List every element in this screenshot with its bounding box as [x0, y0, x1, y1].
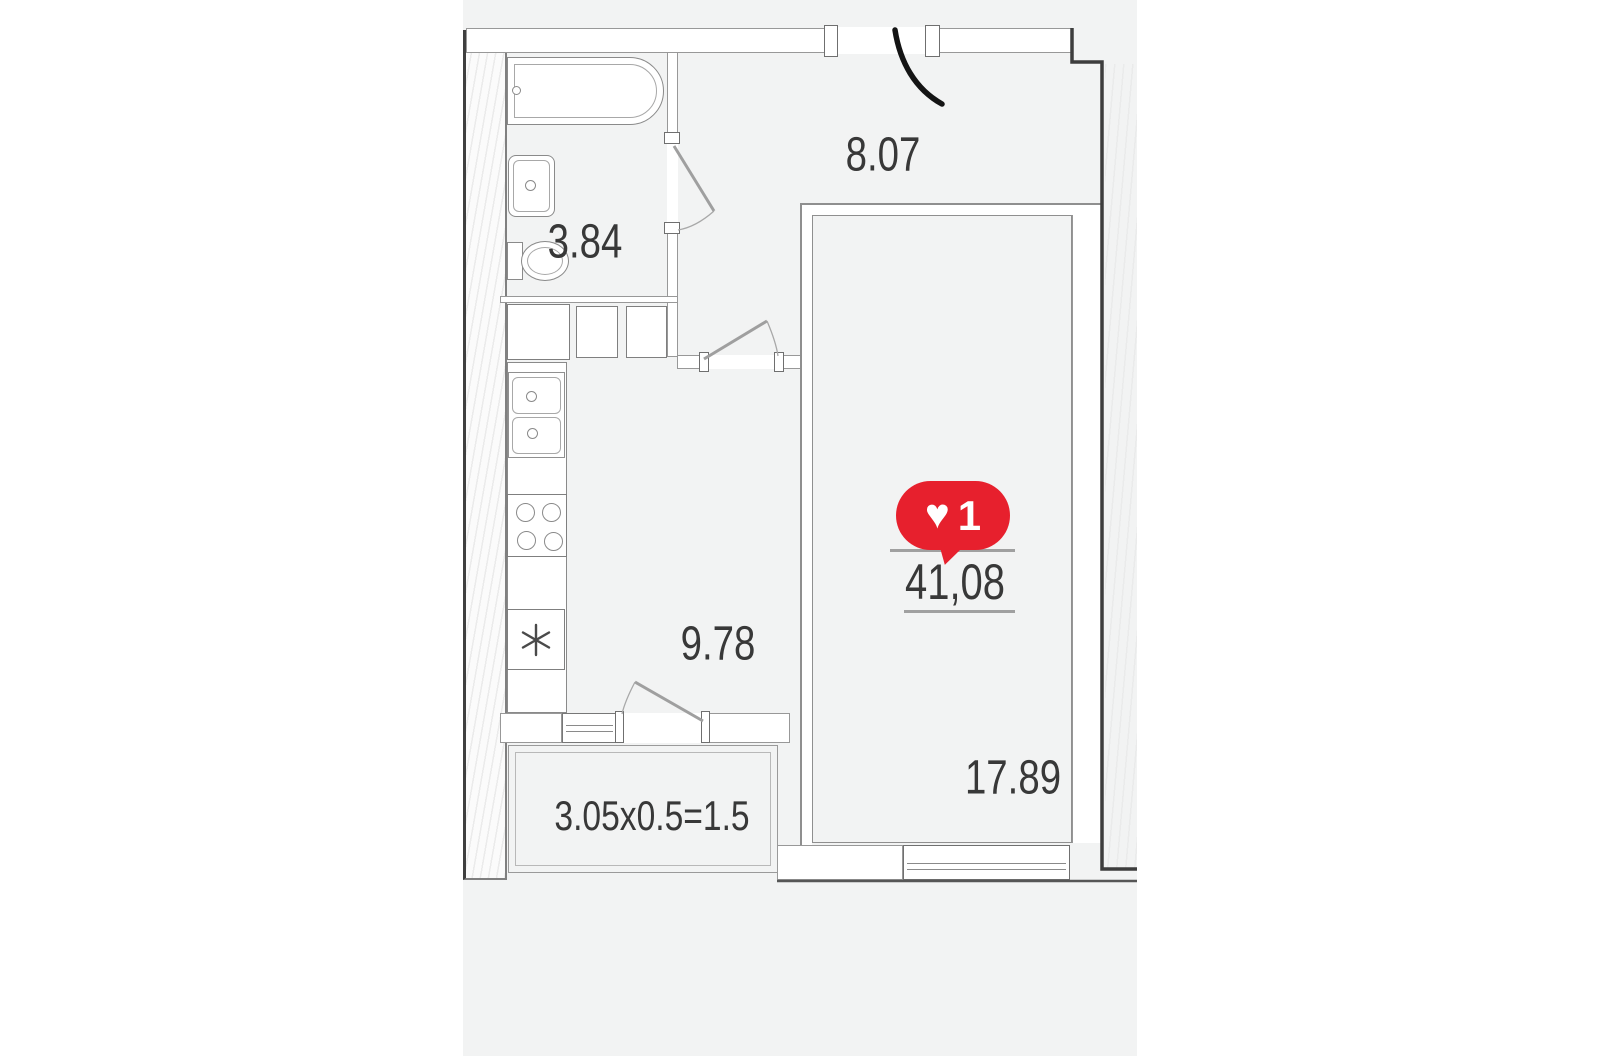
heart-icon: ♥ [925, 493, 950, 535]
bathroom-door-leaf [674, 146, 714, 211]
exterior-wall-dark-outline [1072, 28, 1137, 869]
like-count: 1 [958, 495, 981, 537]
floor-plan: 3.84 8.07 9.78 17.89 3.05x0.5=1.5 41,08 … [463, 0, 1137, 1056]
entrance-door-arc [895, 30, 942, 104]
kitchen-door-leaf [704, 321, 767, 359]
kitchen-door-swing [767, 321, 778, 356]
like-badge[interactable]: ♥ 1 [896, 481, 1010, 550]
bathroom-door-swing [678, 211, 714, 230]
balcony-door-leaf [635, 682, 703, 721]
balcony-door-swing [622, 682, 635, 714]
